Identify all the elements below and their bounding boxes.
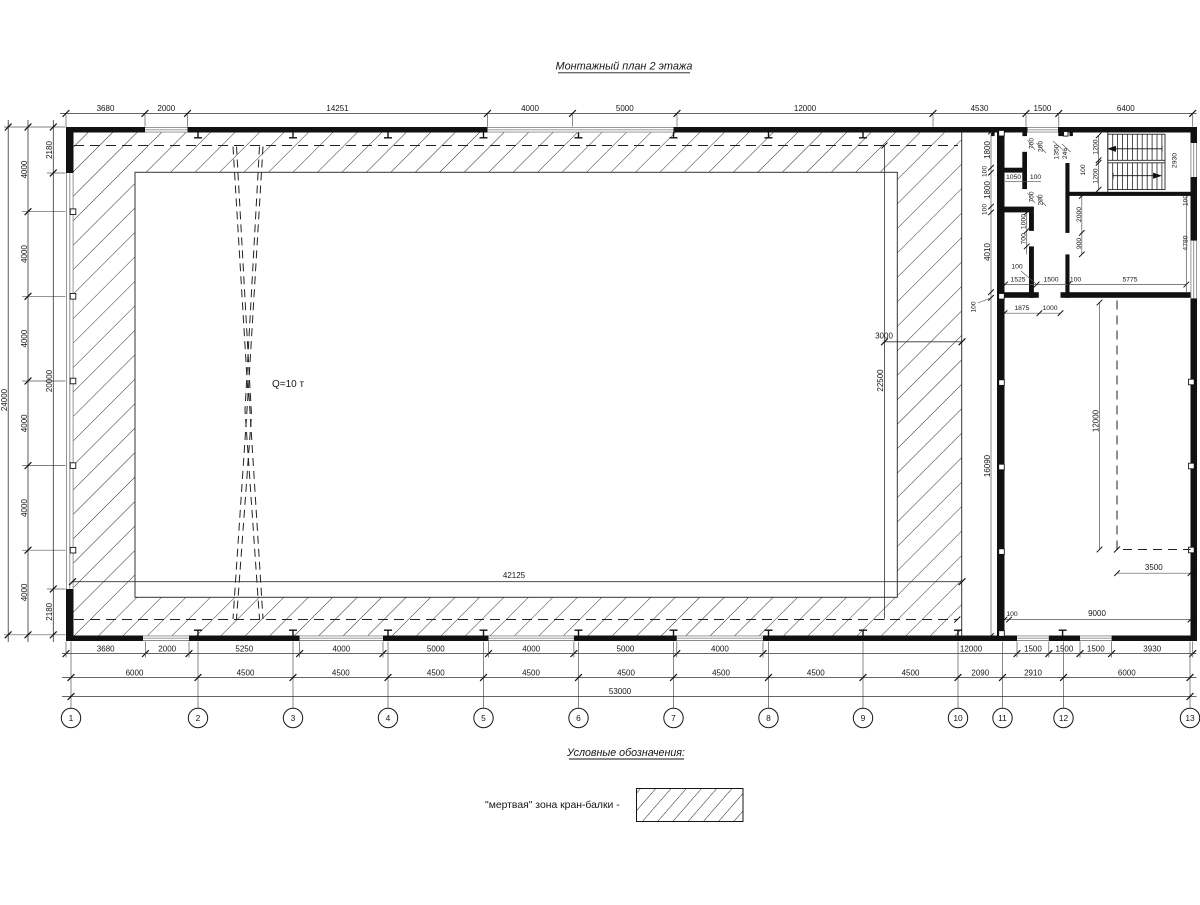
svg-text:2000: 2000: [1076, 207, 1083, 222]
svg-text:4500: 4500: [807, 668, 825, 677]
svg-text:4500: 4500: [902, 668, 920, 677]
svg-text:4000: 4000: [20, 329, 29, 347]
svg-text:6000: 6000: [1118, 668, 1136, 677]
svg-text:3930: 3930: [1143, 644, 1161, 653]
svg-text:5000: 5000: [616, 104, 634, 113]
svg-text:8: 8: [766, 713, 771, 723]
svg-text:1800: 1800: [983, 181, 992, 199]
svg-text:3000: 3000: [875, 331, 893, 340]
svg-text:2180: 2180: [45, 141, 54, 159]
svg-text:1200: 1200: [1092, 139, 1099, 154]
svg-text:10: 10: [953, 713, 963, 723]
svg-text:5000: 5000: [427, 644, 445, 653]
svg-text:100: 100: [1080, 164, 1087, 175]
svg-text:100: 100: [1183, 195, 1190, 206]
svg-text:4000: 4000: [522, 644, 540, 653]
svg-text:4000: 4000: [20, 414, 29, 432]
svg-text:42125: 42125: [503, 571, 526, 580]
svg-text:100: 100: [971, 301, 978, 312]
svg-text:1500: 1500: [1056, 644, 1074, 653]
svg-text:100: 100: [1006, 611, 1018, 618]
svg-text:1500: 1500: [1034, 104, 1052, 113]
svg-text:9: 9: [861, 713, 866, 723]
svg-text:100: 100: [1011, 263, 1023, 270]
svg-text:7: 7: [671, 713, 676, 723]
svg-text:100: 100: [982, 204, 989, 215]
svg-text:4: 4: [386, 713, 391, 723]
svg-text:100: 100: [1030, 174, 1042, 181]
svg-text:24000: 24000: [0, 388, 9, 411]
svg-text:4780: 4780: [1183, 235, 1190, 250]
svg-text:12000: 12000: [1091, 409, 1100, 432]
svg-text:5000: 5000: [617, 644, 635, 653]
svg-text:1200: 1200: [1092, 168, 1099, 183]
svg-text:700: 700: [1029, 138, 1036, 149]
svg-text:4000: 4000: [332, 644, 350, 653]
svg-text:12000: 12000: [794, 104, 817, 113]
svg-text:100: 100: [1070, 277, 1082, 284]
svg-text:4500: 4500: [522, 668, 540, 677]
svg-text:14251: 14251: [326, 104, 349, 113]
svg-text:3: 3: [291, 713, 296, 723]
svg-text:200: 200: [1038, 194, 1045, 205]
svg-text:1800: 1800: [983, 141, 992, 159]
svg-text:3500: 3500: [1145, 563, 1163, 572]
svg-text:6: 6: [576, 713, 581, 723]
svg-text:3680: 3680: [97, 644, 115, 653]
svg-text:2090: 2090: [971, 668, 989, 677]
svg-text:4000: 4000: [521, 104, 539, 113]
svg-text:700: 700: [1029, 191, 1036, 202]
svg-text:4000: 4000: [20, 160, 29, 178]
svg-text:12: 12: [1059, 713, 1069, 723]
svg-text:2: 2: [196, 713, 201, 723]
svg-text:Q=10 т: Q=10 т: [272, 379, 305, 390]
svg-text:5250: 5250: [235, 644, 253, 653]
svg-text:Условные обозначения:: Условные обозначения:: [566, 747, 685, 759]
svg-text:2000: 2000: [158, 644, 176, 653]
svg-text:9000: 9000: [1088, 609, 1106, 618]
svg-text:2000: 2000: [157, 104, 175, 113]
svg-text:4010: 4010: [983, 243, 992, 261]
svg-text:6000: 6000: [126, 668, 144, 677]
svg-text:1: 1: [69, 713, 74, 723]
svg-text:11: 11: [998, 713, 1007, 723]
svg-text:4500: 4500: [427, 668, 445, 677]
svg-text:4500: 4500: [332, 668, 350, 677]
svg-text:5775: 5775: [1122, 277, 1137, 284]
svg-text:1500: 1500: [1024, 644, 1042, 653]
svg-text:4530: 4530: [971, 104, 989, 113]
svg-text:53000: 53000: [609, 687, 632, 696]
svg-text:4000: 4000: [711, 644, 729, 653]
svg-text:22500: 22500: [876, 369, 885, 392]
svg-text:12000: 12000: [960, 644, 983, 653]
svg-text:1000: 1000: [1021, 214, 1028, 229]
svg-text:1500: 1500: [1043, 277, 1058, 284]
svg-text:4000: 4000: [20, 583, 29, 601]
svg-text:4500: 4500: [617, 668, 635, 677]
svg-text:4000: 4000: [20, 245, 29, 263]
svg-text:20000: 20000: [45, 369, 54, 392]
svg-text:2930: 2930: [1172, 153, 1179, 168]
svg-text:700: 700: [1021, 233, 1028, 245]
svg-text:1500: 1500: [1087, 644, 1105, 653]
svg-text:16090: 16090: [983, 454, 992, 477]
svg-text:5: 5: [481, 713, 486, 723]
svg-text:2180: 2180: [45, 602, 54, 620]
svg-text:13: 13: [1185, 713, 1195, 723]
svg-text:Монтажный план 2 этажа: Монтажный план 2 этажа: [556, 61, 693, 73]
svg-text:6400: 6400: [1117, 104, 1135, 113]
svg-text:"мертвая" зона кран-балки -: "мертвая" зона кран-балки -: [485, 799, 620, 811]
svg-text:4500: 4500: [712, 668, 730, 677]
svg-text:1875: 1875: [1014, 305, 1029, 312]
svg-text:2910: 2910: [1024, 668, 1042, 677]
svg-text:1050: 1050: [1006, 174, 1021, 181]
svg-text:900: 900: [1076, 238, 1083, 250]
svg-text:1525: 1525: [1010, 277, 1025, 284]
svg-text:3680: 3680: [97, 104, 115, 113]
svg-text:1000: 1000: [1042, 305, 1057, 312]
svg-text:100: 100: [982, 166, 989, 177]
svg-text:4000: 4000: [20, 499, 29, 517]
svg-text:4500: 4500: [237, 668, 255, 677]
